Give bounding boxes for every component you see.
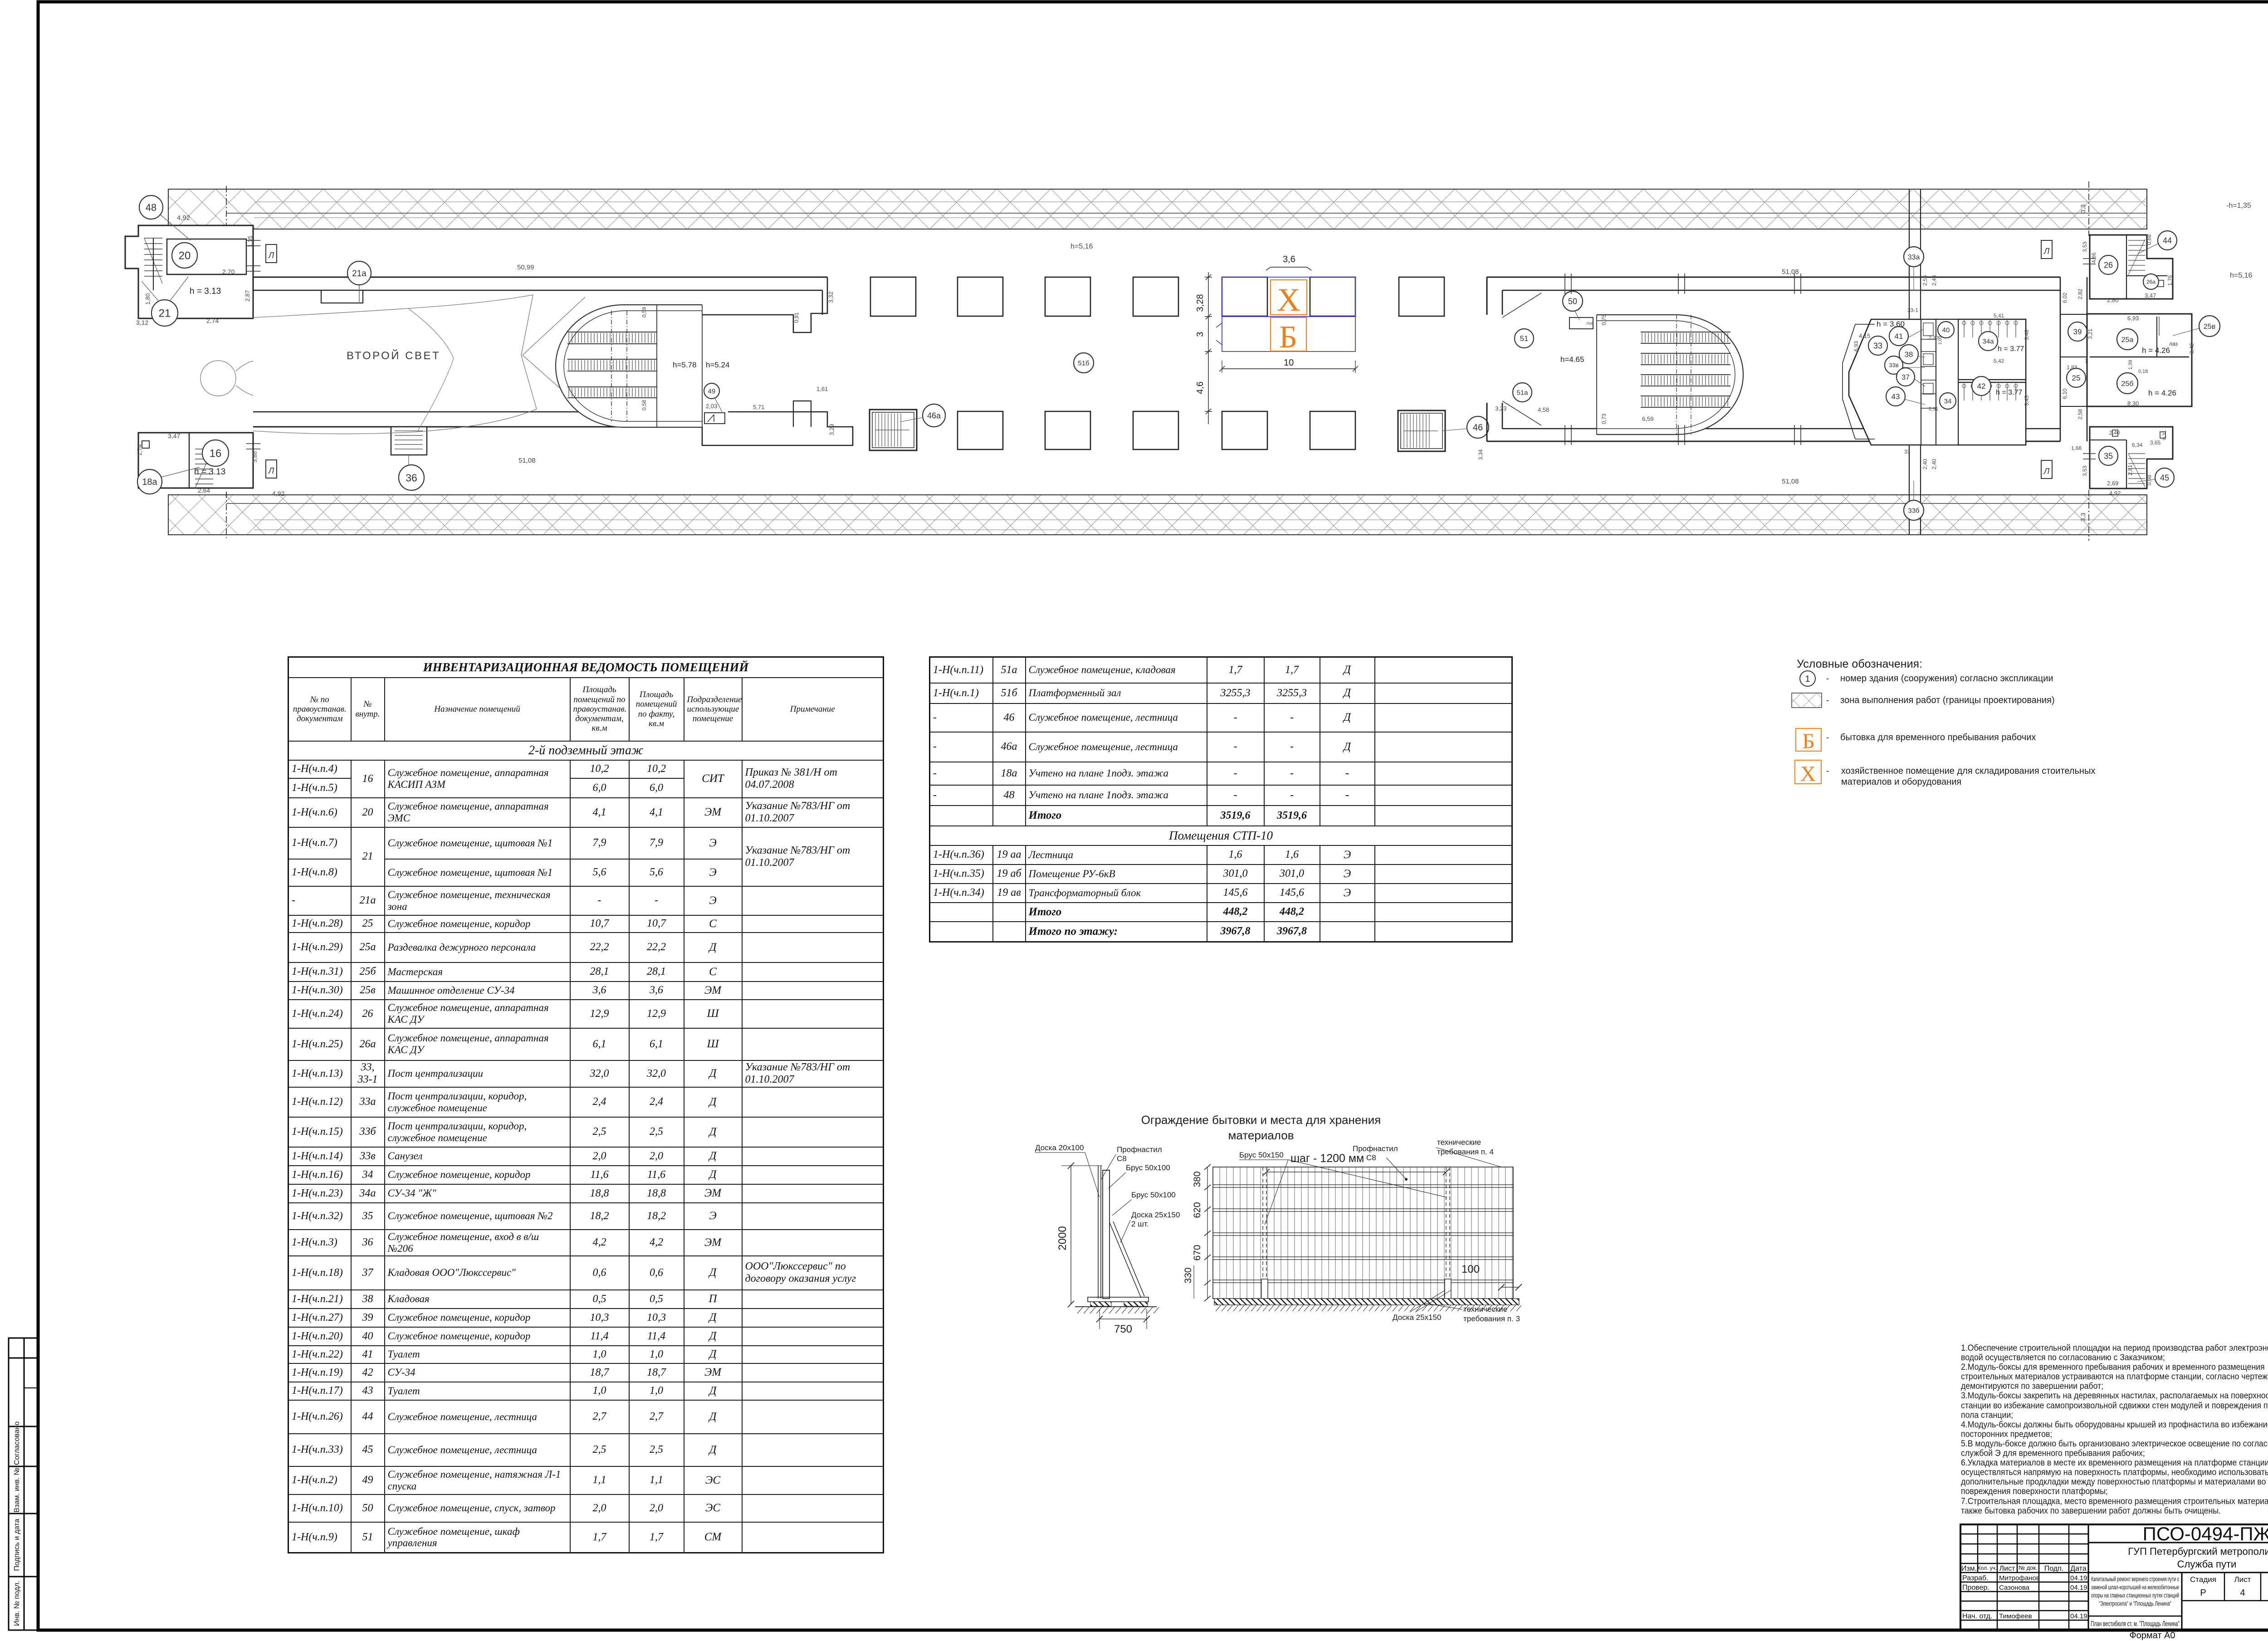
svg-text:04.19: 04.19: [2070, 1612, 2087, 1620]
svg-text:51б: 51б: [1078, 359, 1089, 367]
svg-text:25: 25: [2072, 374, 2081, 382]
svg-text:материалов и оборудования: материалов и оборудования: [1841, 777, 1961, 787]
svg-text:5,41: 5,41: [1994, 313, 2004, 319]
svg-text:Разраб.: Разраб.: [1962, 1574, 1989, 1582]
svg-text:34а: 34а: [1982, 337, 1994, 345]
svg-text:34: 34: [1944, 397, 1952, 405]
svg-text:51а: 51а: [1516, 389, 1528, 396]
svg-text:3,34: 3,34: [1477, 449, 1484, 460]
svg-text:2,40: 2,40: [2109, 430, 2120, 436]
svg-text:Взам. инв. №: Взам. инв. №: [13, 1467, 21, 1512]
svg-text:33: 33: [1873, 341, 1882, 350]
svg-text:Служба пути: Служба пути: [2177, 1558, 2237, 1570]
svg-text:3,23: 3,23: [1495, 405, 1506, 412]
svg-text:2,30: 2,30: [1929, 335, 1938, 341]
svg-text:Х: Х: [1800, 762, 1816, 786]
svg-text:0,31: 0,31: [2162, 430, 2167, 440]
svg-text:2,69: 2,69: [2107, 480, 2118, 487]
svg-text:38: 38: [1905, 350, 1913, 359]
svg-text:6,34: 6,34: [2132, 442, 2143, 448]
svg-text:8,30: 8,30: [2127, 400, 2139, 407]
svg-text:25а: 25а: [2121, 336, 2134, 344]
svg-text:100: 100: [1461, 1263, 1480, 1275]
svg-text:6,93: 6,93: [1853, 341, 1859, 352]
svg-text:4,92: 4,92: [177, 214, 190, 222]
svg-text:48: 48: [146, 202, 156, 213]
svg-text:3,28: 3,28: [1195, 294, 1205, 312]
svg-text:Л: Л: [2043, 467, 2050, 476]
svg-text:4,15: 4,15: [1859, 332, 1870, 339]
svg-text:4,66: 4,66: [2091, 252, 2097, 263]
svg-text:44: 44: [2163, 236, 2172, 245]
svg-text:670: 670: [1192, 1245, 1202, 1260]
svg-text:h=5.78: h=5.78: [673, 361, 696, 369]
svg-text:45: 45: [2160, 473, 2169, 482]
svg-text:37: 37: [1901, 374, 1910, 381]
svg-text:заменой шпал-коротышей на желе: заменой шпал-коротышей на железобетонные: [2091, 1584, 2179, 1591]
svg-text:h=4.65: h=4.65: [1560, 355, 1584, 364]
svg-text:20: 20: [179, 250, 191, 262]
svg-text:620: 620: [1192, 1202, 1202, 1218]
svg-text:26а: 26а: [2146, 278, 2156, 285]
svg-text:хозяйственное помещение для ск: хозяйственное помещение для складировани…: [1841, 766, 2095, 776]
svg-text:3,65: 3,65: [2150, 440, 2161, 446]
svg-text:Кол. уч.: Кол. уч.: [1978, 1565, 1997, 1571]
svg-text:5,42: 5,42: [1994, 358, 2004, 364]
svg-text:Б: Б: [1279, 320, 1297, 355]
svg-text:25б: 25б: [2121, 380, 2134, 388]
svg-text:3,6: 3,6: [1283, 254, 1295, 264]
svg-text:Провер.: Провер.: [1962, 1584, 1989, 1592]
svg-text:Подп.: Подп.: [2044, 1565, 2064, 1573]
svg-text:51,08: 51,08: [1782, 478, 1799, 485]
svg-text:h = 4.26: h = 4.26: [2148, 389, 2176, 397]
svg-text:2,03: 2,03: [706, 403, 717, 410]
svg-text:6,10: 6,10: [2062, 388, 2068, 399]
svg-text:Л: Л: [2043, 247, 2050, 256]
svg-text:зона выполнения работ (границы: зона выполнения работ (границы проектиро…: [1840, 695, 2055, 705]
svg-text:бытовка для временного пребыва: бытовка для временного пребывания рабочи…: [1840, 733, 2036, 742]
svg-text:2,87: 2,87: [244, 290, 251, 302]
svg-text:4,58: 4,58: [1538, 406, 1549, 413]
svg-text:лов: лов: [1586, 321, 1594, 326]
svg-text:33а: 33а: [1908, 254, 1920, 261]
svg-text:2000: 2000: [1056, 1226, 1069, 1250]
svg-text:5,71: 5,71: [753, 404, 764, 410]
svg-text:21: 21: [159, 308, 171, 320]
svg-text:33-1: 33-1: [1907, 307, 1918, 313]
svg-text:С8: С8: [1117, 1154, 1127, 1163]
svg-text:Тимофеев: Тимофеев: [1999, 1612, 2032, 1620]
svg-text:3,21: 3,21: [2087, 328, 2093, 339]
svg-text:330: 330: [1183, 1267, 1193, 1283]
svg-text:3,3: 3,3: [2079, 204, 2087, 213]
svg-text:Брус 50х150: Брус 50х150: [1239, 1151, 1284, 1159]
svg-text:h=5,16: h=5,16: [2230, 272, 2252, 279]
svg-text:Б: Б: [1802, 729, 1815, 753]
svg-text:26: 26: [2104, 260, 2113, 269]
svg-text:4,92: 4,92: [2109, 490, 2121, 497]
svg-text:Доска 25х150: Доска 25х150: [1393, 1313, 1441, 1322]
svg-text:33б: 33б: [1908, 507, 1919, 514]
svg-text:Лист: Лист: [1999, 1565, 2015, 1573]
svg-text:2,43: 2,43: [1931, 275, 1937, 286]
svg-text:3,48: 3,48: [2024, 329, 2030, 340]
svg-text:План вестибюля ст. м. "Площадь: План вестибюля ст. м. "Площадь Ленина": [2091, 1620, 2180, 1628]
svg-text:2,58: 2,58: [2077, 409, 2083, 420]
svg-text:41: 41: [1895, 332, 1903, 341]
svg-text:Доска 25х150: Доска 25х150: [1131, 1211, 1180, 1219]
svg-text:40: 40: [1942, 326, 1950, 334]
svg-text:Доска 20х100: Доска 20х100: [1035, 1143, 1084, 1152]
svg-text:0,91: 0,91: [793, 312, 800, 323]
svg-text:1: 1: [1805, 674, 1810, 684]
svg-text:ПСО-0494-ПЖ: ПСО-0494-ПЖ: [2143, 1523, 2268, 1544]
svg-text:49: 49: [708, 387, 716, 395]
svg-text:6,93: 6,93: [2127, 315, 2139, 322]
svg-text:3,42: 3,42: [2189, 343, 2195, 354]
svg-text:2,70: 2,70: [222, 268, 235, 275]
svg-text:h=5,16: h=5,16: [1070, 243, 1093, 250]
svg-text:0,73: 0,73: [1601, 413, 1607, 424]
svg-text:Капитальный ремонт верхнего ст: Капитальный ремонт верхнего строения пут…: [2091, 1576, 2179, 1582]
svg-text:номер здания (сооружения) согл: номер здания (сооружения) согласно экспл…: [1840, 674, 2053, 684]
svg-text:04.19: 04.19: [2070, 1574, 2087, 1582]
svg-text:42: 42: [1977, 382, 1986, 391]
svg-text:1,39: 1,39: [2128, 360, 2133, 370]
svg-text:Стадия: Стадия: [2190, 1575, 2216, 1584]
svg-text:50,99: 50,99: [517, 264, 534, 271]
svg-text:3,53: 3,53: [2082, 465, 2088, 476]
svg-text:опоры на главных станционных п: опоры на главных станционных путях станц…: [2091, 1592, 2179, 1599]
svg-text:Брус 50х100: Брус 50х100: [1126, 1163, 1170, 1172]
svg-text:№ док.: № док.: [2019, 1564, 2038, 1571]
svg-text:Х: Х: [1277, 282, 1300, 318]
svg-text:2,74: 2,74: [206, 317, 219, 324]
svg-text:Инв. № подл.: Инв. № подл.: [13, 1581, 21, 1626]
svg-text:-: -: [1826, 674, 1829, 684]
svg-text:16: 16: [210, 448, 222, 460]
svg-text:4,6: 4,6: [1195, 381, 1205, 394]
svg-text:2,56: 2,56: [1922, 275, 1928, 286]
svg-text:0,58: 0,58: [641, 307, 647, 317]
svg-text:380: 380: [1192, 1171, 1202, 1187]
svg-text:1,76: 1,76: [2167, 275, 2173, 286]
svg-text:2,82: 2,82: [2077, 288, 2083, 299]
svg-text:0,75: 0,75: [1601, 314, 1607, 325]
svg-text:1,66: 1,66: [2071, 445, 2082, 451]
svg-text:-: -: [1826, 696, 1829, 705]
svg-text:46: 46: [1473, 423, 1483, 433]
svg-text:3: 3: [1195, 332, 1205, 337]
svg-text:51: 51: [1520, 334, 1529, 343]
svg-text:3,12: 3,12: [136, 319, 148, 326]
svg-text:3,3: 3,3: [2079, 513, 2087, 522]
svg-text:Лист: Лист: [2234, 1575, 2251, 1584]
svg-text:h = 3.77: h = 3.77: [1998, 345, 2024, 353]
svg-text:1,80: 1,80: [144, 293, 151, 305]
svg-text:h = 3.13: h = 3.13: [190, 287, 221, 296]
svg-text:Согласовано: Согласовано: [13, 1421, 21, 1465]
svg-text:Л: Л: [268, 251, 274, 260]
svg-text:h = 4.26: h = 4.26: [2142, 346, 2170, 355]
svg-text:2,31: 2,31: [1929, 406, 1938, 412]
svg-text:Ограждение бытовки и места для: Ограждение бытовки и места для хранения: [1141, 1113, 1381, 1127]
svg-text:Изм.: Изм.: [1961, 1565, 1977, 1573]
svg-text:2,40: 2,40: [1931, 459, 1937, 469]
svg-text:25в: 25в: [2204, 323, 2215, 331]
svg-text:10: 10: [1284, 358, 1294, 368]
svg-text:Дата: Дата: [2070, 1565, 2087, 1573]
svg-text:3,88: 3,88: [251, 451, 258, 463]
svg-text:2,40: 2,40: [1922, 459, 1928, 469]
svg-text:1,61: 1,61: [816, 386, 828, 392]
svg-text:Формат А0: Формат А0: [2129, 1631, 2175, 1641]
svg-text:лаз: лаз: [2169, 341, 2178, 347]
svg-text:требования п. 4: требования п. 4: [1437, 1148, 1494, 1156]
svg-text:ВТОРОЙ СВЕТ: ВТОРОЙ СВЕТ: [347, 349, 440, 362]
svg-text:43: 43: [1892, 392, 1900, 401]
svg-text:35: 35: [2104, 451, 2113, 460]
svg-text:-h=1,35: -h=1,35: [2226, 202, 2251, 210]
svg-text:Подпись и дата: Подпись и дата: [13, 1519, 21, 1571]
svg-text:Митрофанов: Митрофанов: [1999, 1574, 2040, 1582]
svg-text:0,58: 0,58: [641, 400, 647, 410]
svg-text:36: 36: [406, 472, 417, 484]
svg-text:Профнастил: Профнастил: [1353, 1144, 1398, 1153]
svg-text:0,18: 0,18: [2138, 369, 2148, 374]
svg-text:33в: 33в: [1889, 362, 1898, 369]
svg-text:Профнастил: Профнастил: [1117, 1145, 1162, 1154]
svg-text:4: 4: [2240, 1588, 2245, 1598]
svg-text:Нач. отд.: Нач. отд.: [1962, 1612, 1992, 1620]
svg-text:Брус 50х100: Брус 50х100: [1131, 1191, 1176, 1199]
svg-text:51,08: 51,08: [518, 457, 536, 464]
svg-text:h = 3.77: h = 3.77: [1996, 389, 2022, 396]
svg-text:6,02: 6,02: [2062, 292, 2068, 303]
svg-text:-: -: [1826, 767, 1829, 776]
svg-text:3,47: 3,47: [168, 432, 180, 440]
svg-text:Р: Р: [2200, 1588, 2206, 1598]
svg-text:Условные обозначения:: Условные обозначения:: [1797, 658, 1922, 670]
svg-text:750: 750: [1114, 1323, 1132, 1335]
svg-text:3,45: 3,45: [2024, 395, 2030, 406]
svg-text:3,29: 3,29: [828, 424, 835, 435]
svg-text:-: -: [1826, 733, 1829, 742]
svg-text:51,08: 51,08: [1782, 268, 1799, 276]
svg-text:h = 3.13: h = 3.13: [194, 467, 225, 477]
svg-text:Л: Л: [268, 466, 274, 475]
svg-text:33: 33: [1904, 449, 1911, 455]
svg-text:04.19: 04.19: [2070, 1584, 2087, 1592]
svg-text:"Электросила" и "Площадь Ленин: "Электросила" и "Площадь Ленина": [2099, 1600, 2171, 1607]
svg-text:1,74: 1,74: [136, 444, 143, 456]
svg-text:6,59: 6,59: [1642, 415, 1653, 422]
svg-text:39: 39: [2073, 327, 2082, 336]
svg-text:технические: технические: [1463, 1305, 1507, 1314]
svg-text:материалов: материалов: [1228, 1128, 1294, 1142]
svg-text:2 шт.: 2 шт.: [1131, 1220, 1149, 1228]
svg-text:технические: технические: [1437, 1138, 1481, 1147]
svg-text:3,53: 3,53: [2082, 241, 2088, 252]
svg-text:3,32: 3,32: [827, 292, 834, 303]
svg-text:С8: С8: [1366, 1153, 1376, 1162]
svg-text:2,80: 2,80: [2107, 297, 2118, 303]
svg-text:Сазонова: Сазонова: [1999, 1584, 2030, 1592]
svg-text:18а: 18а: [142, 477, 157, 487]
svg-text:3,47: 3,47: [2145, 292, 2156, 299]
svg-text:21а: 21а: [352, 269, 367, 278]
svg-text:2,64: 2,64: [198, 487, 210, 494]
svg-text:требования п. 3: требования п. 3: [1463, 1314, 1520, 1323]
svg-text:46а: 46а: [927, 411, 941, 420]
svg-text:50: 50: [1568, 297, 1577, 306]
svg-text:h=5.24: h=5.24: [706, 361, 729, 369]
svg-text:0,68: 0,68: [2146, 234, 2152, 245]
svg-text:ГУП Петербургский метрополитен: ГУП Петербургский метрополитен: [2128, 1546, 2268, 1557]
svg-text:4,92: 4,92: [272, 490, 284, 497]
